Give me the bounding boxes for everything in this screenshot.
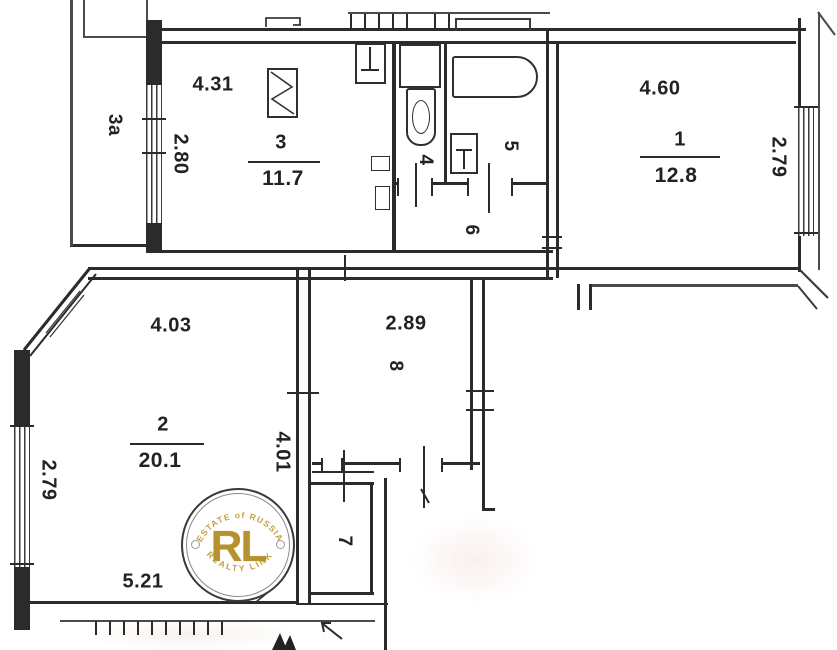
dimension-tick xyxy=(542,247,562,249)
scan-smudge xyxy=(80,620,300,650)
kitchen-sink-bar xyxy=(361,69,379,71)
wall-hatch-tick xyxy=(406,14,408,30)
loggia-hatch-tick xyxy=(207,621,209,635)
room8-number: 8 xyxy=(384,360,406,371)
wall-hatch-tick xyxy=(392,14,394,30)
wall-top-outer xyxy=(146,28,806,31)
room1-area: 12.8 xyxy=(655,164,698,188)
door-jamb xyxy=(511,178,513,196)
dimension-tick xyxy=(344,255,346,281)
dim-room2-right: 4.01 xyxy=(271,432,294,473)
wall-hatch-tick xyxy=(350,14,352,30)
dim-room2-left: 2.79 xyxy=(37,460,60,501)
watermark-monogram: RL xyxy=(211,522,266,572)
wall-room8-bottom xyxy=(442,462,480,465)
cutoff-mark xyxy=(272,633,287,650)
window-tick xyxy=(10,425,34,427)
washing-machine-icon xyxy=(399,44,441,88)
loggia-outer-line xyxy=(60,620,375,622)
door-jamb xyxy=(467,178,469,196)
corner-diagonal xyxy=(800,270,828,298)
window-tick xyxy=(10,563,34,565)
door-leaf-room7 xyxy=(343,450,345,502)
wall-hatch-tick xyxy=(448,14,450,30)
loggia-hatch-tick xyxy=(165,621,167,635)
door-leaf-room8 xyxy=(423,446,425,508)
door-jamb xyxy=(397,178,399,196)
watermark-right-dot xyxy=(276,540,285,549)
wall-room8-right-a xyxy=(470,277,473,470)
scan-smudge xyxy=(410,515,540,605)
wall-room7-bottom-outer xyxy=(296,603,388,605)
loggia-hatch-tick xyxy=(137,621,139,635)
wall-room1-right-upper xyxy=(798,18,801,108)
room3-area: 11.7 xyxy=(262,167,304,191)
wall-room2-left-upper xyxy=(14,350,30,427)
wall-bath-room1-a xyxy=(546,28,549,278)
dimension-tick xyxy=(466,409,494,411)
bay-window-line xyxy=(46,291,80,333)
window-room1 xyxy=(798,108,814,236)
door-jamb xyxy=(589,284,592,310)
wall-building-edge-right xyxy=(818,12,820,270)
dim-room1-right: 2.79 xyxy=(767,137,790,178)
dim-room2-top: 4.03 xyxy=(151,315,192,338)
wall-wc-bath-divider xyxy=(444,41,447,182)
room6-number: 6 xyxy=(460,224,482,235)
loggia-hatch-tick xyxy=(95,621,97,635)
room2-area: 20.1 xyxy=(139,449,182,473)
corner-diagonal xyxy=(798,286,817,309)
dimension-tick xyxy=(466,390,494,392)
loggia-hatch-tick xyxy=(109,621,111,635)
window-room2-left xyxy=(14,427,30,567)
corner-diagonal xyxy=(818,12,835,35)
window-tick xyxy=(142,152,166,154)
loggia-hatch-tick xyxy=(123,621,125,635)
wall-balcony-outer xyxy=(70,0,73,246)
loggia-hatch-tick xyxy=(151,621,153,635)
entrance-arrow xyxy=(323,624,342,639)
bath-sink-stem xyxy=(463,151,465,169)
wall-room8-right-b xyxy=(482,277,485,510)
wall-room8-right-stub xyxy=(482,508,495,511)
wall-corridor-line xyxy=(590,284,798,287)
door-jamb xyxy=(577,284,580,310)
wall-bath-partition xyxy=(432,182,468,185)
watermark-left-dot xyxy=(191,540,200,549)
loggia-hatch-tick xyxy=(193,621,195,635)
wall-kitchen-left-lower xyxy=(146,223,162,253)
bathtub-icon xyxy=(452,56,538,98)
wall-room7-bottom xyxy=(308,592,374,595)
watermark-stamp: ESTATE of RUSSIA REALTY LINK RL xyxy=(181,488,295,602)
vent-bracket xyxy=(266,18,300,27)
bay-wall-inner xyxy=(30,274,96,356)
wall-top-inner xyxy=(146,41,796,44)
stove-icon xyxy=(267,68,298,118)
wall-entry-hall-left xyxy=(384,478,387,650)
window-kitchen-balcony xyxy=(146,85,162,223)
balcony-label: 3a xyxy=(103,114,125,136)
entrance-arrow-head xyxy=(322,623,331,632)
wall-room2-left-lower xyxy=(14,567,30,630)
wall-hatch-tick xyxy=(434,14,436,30)
room7-number: 7 xyxy=(333,535,355,546)
dim-room3-left: 2.80 xyxy=(169,134,192,175)
bay-wall-outer xyxy=(24,268,90,350)
wall-kitchen-left-upper xyxy=(146,20,162,85)
kitchen-sink-stem xyxy=(369,47,371,71)
room2-underline xyxy=(130,443,204,445)
room3-underline xyxy=(248,161,320,163)
dim-room2-bottom: 5.21 xyxy=(123,571,164,594)
room1-number: 1 xyxy=(674,129,686,152)
bay-window-line xyxy=(50,295,84,337)
vent-shaft xyxy=(375,186,390,210)
wall-mid-upper xyxy=(146,250,553,253)
door-leaf-bath xyxy=(488,163,490,213)
door-leaf-wc xyxy=(415,163,417,207)
wall-bath-room1-b xyxy=(556,41,559,278)
wall-kitchen-right xyxy=(392,41,396,252)
dimension-tick xyxy=(287,392,319,394)
wall-room1-right-lower xyxy=(798,236,801,272)
room3-number: 3 xyxy=(275,132,287,155)
wall-balcony-top-link xyxy=(83,36,148,38)
dim-room8-top: 2.89 xyxy=(386,313,427,336)
door-jamb xyxy=(431,178,433,196)
door-jamb xyxy=(399,458,401,472)
wall-bath-partition xyxy=(512,182,548,185)
door-jamb xyxy=(441,458,443,472)
room5-number: 5 xyxy=(499,140,521,151)
room1-underline xyxy=(640,156,720,158)
room2-number: 2 xyxy=(157,414,169,437)
wall-room2-right-b xyxy=(308,267,311,603)
dimension-tick xyxy=(542,236,562,238)
loggia-hatch-tick xyxy=(179,621,181,635)
wall-room7-top xyxy=(308,482,374,485)
door-jamb xyxy=(321,458,323,472)
wall-mid-lower-a xyxy=(88,267,800,270)
wall-room7-right xyxy=(370,482,373,595)
wall-hatch-tick xyxy=(364,14,366,30)
toilet-bowl-oval xyxy=(412,100,430,134)
wall-building-edge-top-left xyxy=(83,0,85,38)
loggia-hatch-tick xyxy=(221,621,223,635)
floor-plan-canvas: 4.31 2.80 3 11.7 3a 4 5 6 4.60 1 12.8 2.… xyxy=(0,0,837,650)
room4-number: 4 xyxy=(414,154,436,165)
window-tick xyxy=(794,106,818,108)
window-tick xyxy=(142,118,166,120)
cutoff-mark xyxy=(283,635,296,650)
window-tick xyxy=(794,232,818,234)
dim-room3-top: 4.31 xyxy=(193,74,234,97)
dim-room1-top: 4.60 xyxy=(640,78,681,101)
wall-hatch-tick xyxy=(378,14,380,30)
vent-shaft xyxy=(371,156,390,171)
wall-room8-bottom xyxy=(342,462,400,465)
